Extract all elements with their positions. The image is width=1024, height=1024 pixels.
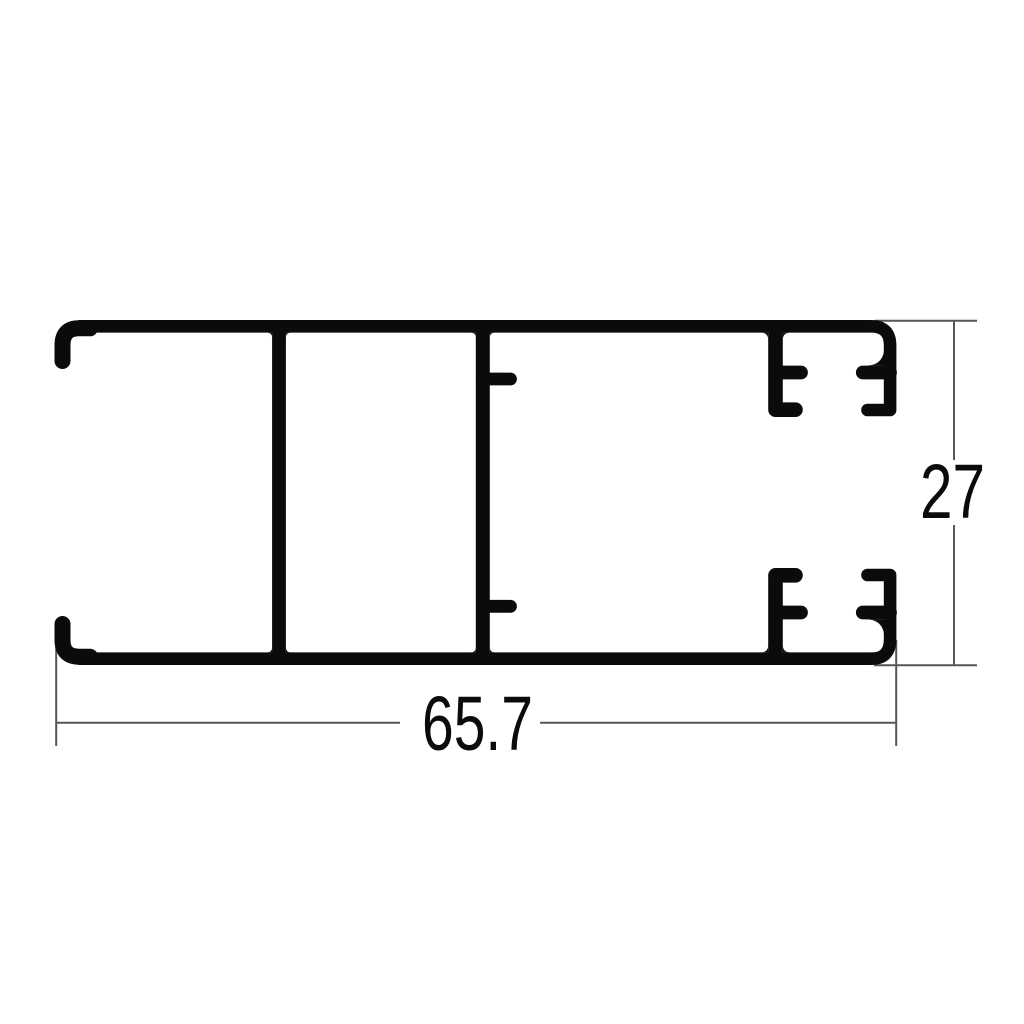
svg-text:65.7: 65.7 <box>422 681 533 767</box>
svg-text:27: 27 <box>920 449 985 535</box>
